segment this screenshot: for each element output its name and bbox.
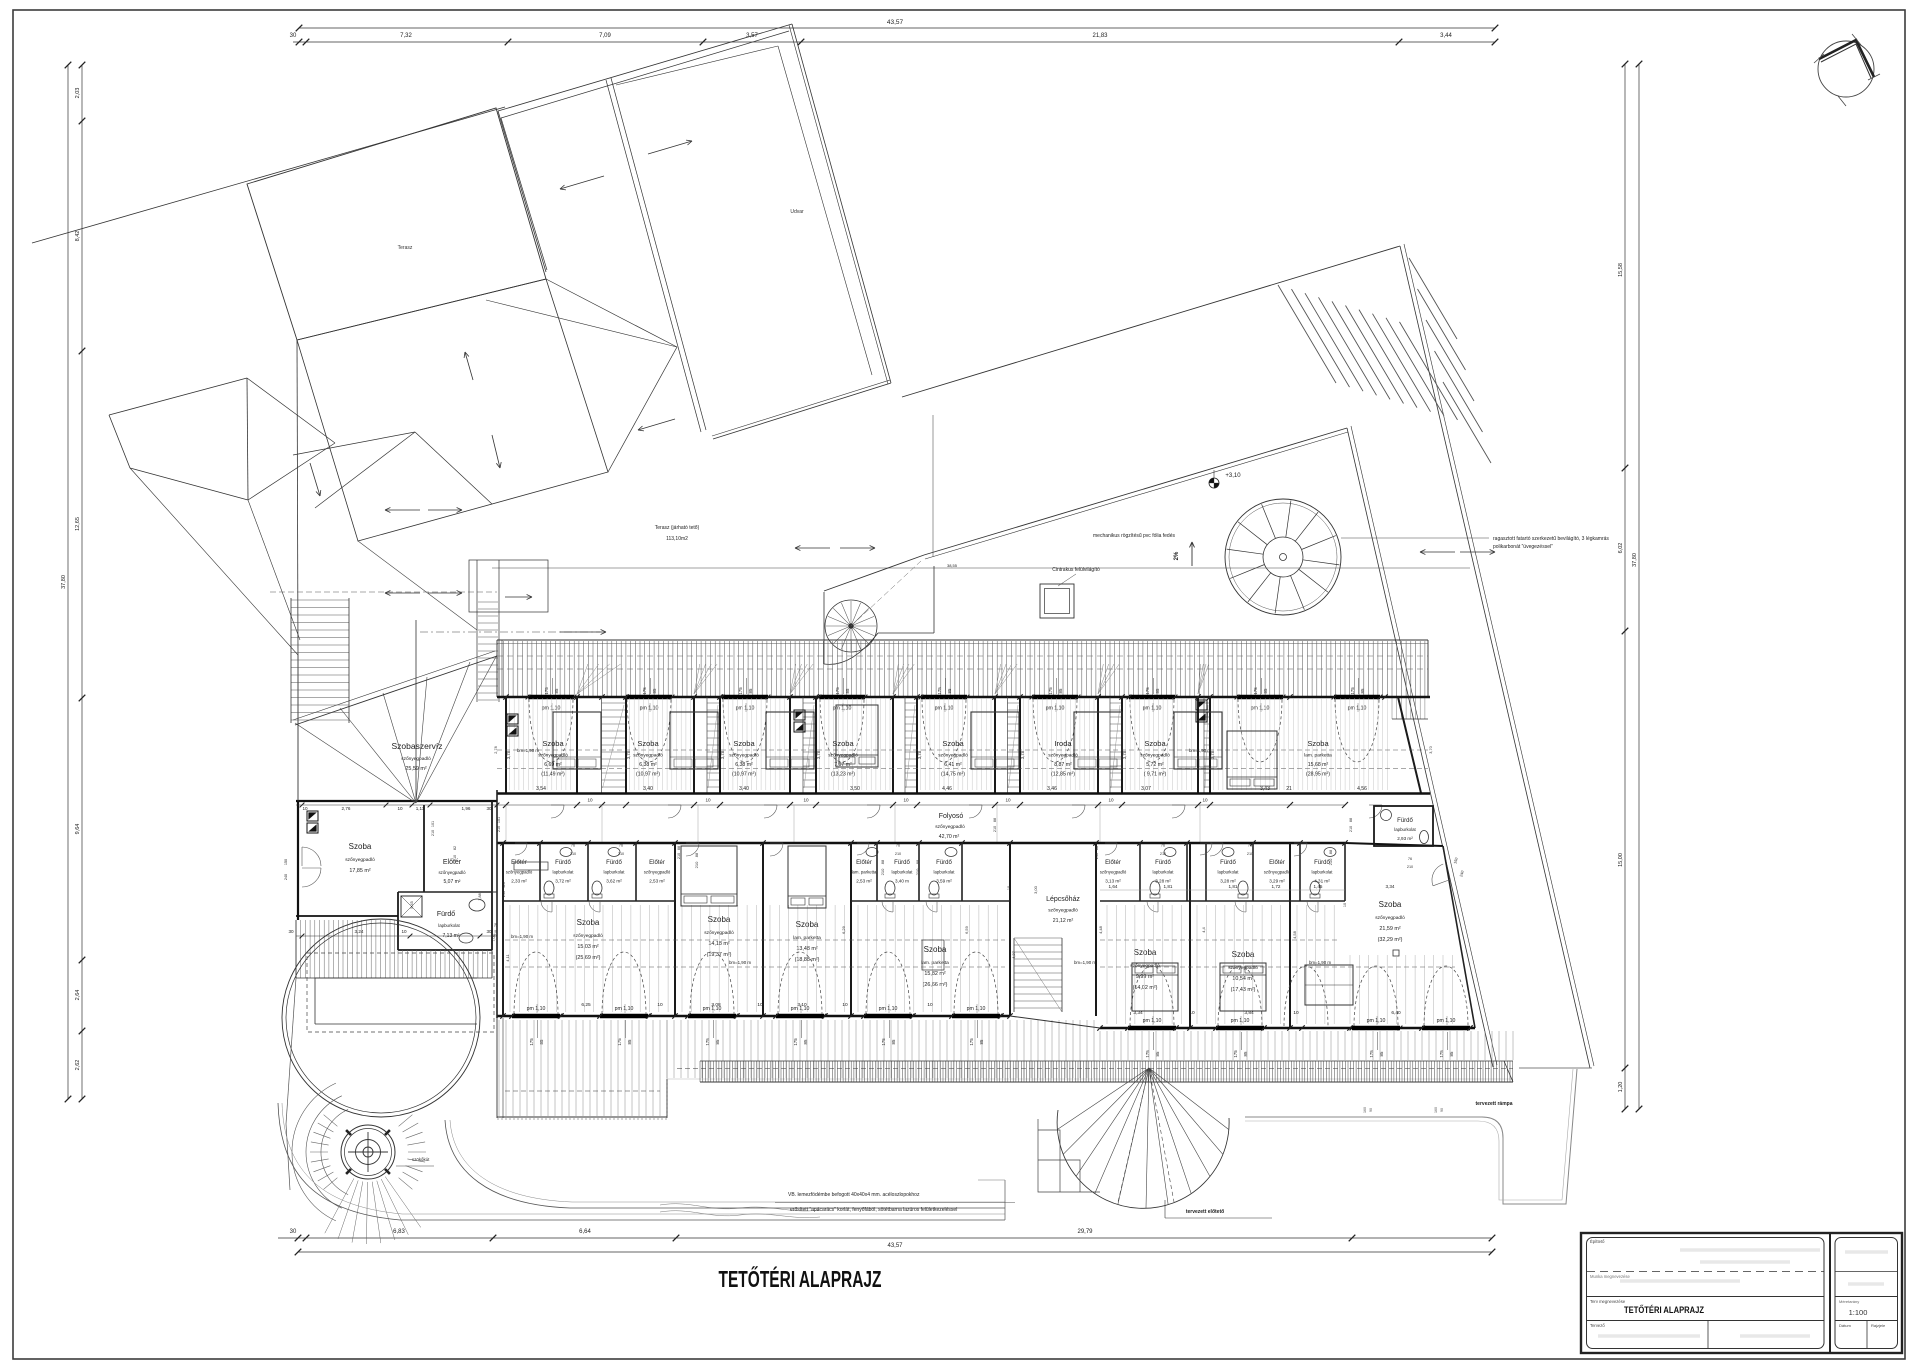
svg-text:TETŐTÉRI ALAPRAJZ: TETŐTÉRI ALAPRAJZ [719,1265,882,1292]
svg-text:pm 1,10: pm 1,10 [1046,706,1065,712]
svg-text:+3,10: +3,10 [1225,473,1241,479]
svg-text:(14,75 m²): (14,75 m²) [941,772,965,778]
svg-text:Udvar: Udvar [790,209,804,215]
svg-text:Fürdő: Fürdő [936,860,952,866]
svg-text:mechanikus rögzítésű pvc fóli: mechanikus rögzítésű pvc fólia fedés [1093,533,1175,539]
svg-text:szőnyegpadló: szőnyegpadló [633,753,663,759]
svg-text:210: 210 [1328,858,1333,865]
svg-text:3,78: 3,78 [506,750,511,759]
svg-text:2,64: 2,64 [75,990,81,1001]
svg-text:Terv megnevezése: Terv megnevezése [1590,1299,1626,1304]
svg-text:1,81: 1,81 [1229,884,1238,889]
svg-text:szőnyegpadló: szőnyegpadló [644,870,671,875]
svg-text:Szoba: Szoba [1144,739,1166,748]
svg-text:1,72: 1,72 [1272,884,1281,889]
svg-text:pm 1,10: pm 1,10 [1143,1018,1162,1024]
svg-text:Terasz: Terasz [398,245,413,251]
svg-text:175: 175 [1145,687,1150,695]
svg-text:(10,97 m²): (10,97 m²) [636,772,660,778]
svg-text:szőnyegpadló: szőnyegpadló [1375,915,1405,921]
svg-text:3,78: 3,78 [720,750,725,759]
svg-text:Munka megnevezése: Munka megnevezése [1590,1274,1630,1279]
svg-text:85: 85 [748,688,753,693]
svg-text:(14,02 m²): (14,02 m²) [1133,985,1158,991]
svg-text:85: 85 [627,1039,632,1044]
svg-text:15,00: 15,00 [1618,853,1624,867]
svg-text:3,78: 3,78 [1210,750,1215,759]
svg-text:2,33 m²: 2,33 m² [511,879,527,884]
svg-text:5,45: 5,45 [410,901,414,908]
svg-text:150: 150 [284,859,288,865]
svg-text:(12,85 m²): (12,85 m²) [1051,772,1075,778]
svg-text:lapburkolat: lapburkolat [1311,870,1333,875]
svg-text:pm 1,10: pm 1,10 [527,1006,546,1012]
svg-text:175: 175 [835,687,840,695]
svg-text:37,80: 37,80 [61,575,67,589]
svg-text:9,64: 9,64 [75,824,81,835]
svg-text:Terasz (járható tető): Terasz (járható tető) [655,525,700,531]
svg-text:Méretarány: Méretarány [1839,1299,1859,1304]
svg-text:3,07: 3,07 [1141,786,1151,792]
svg-text:10: 10 [842,1002,848,1008]
svg-text:pm 1,10: pm 1,10 [1251,706,1270,712]
svg-text:210: 210 [1095,853,1099,859]
svg-text:10: 10 [1343,903,1347,907]
svg-text:42,70 m²: 42,70 m² [939,834,960,840]
svg-text:10: 10 [705,798,711,803]
svg-text:2,93 m²: 2,93 m² [1397,836,1413,841]
svg-text:Fürdő: Fürdő [1397,818,1413,824]
svg-text:szőnyegpadló: szőnyegpadló [1100,870,1127,875]
svg-text:10: 10 [903,798,909,803]
svg-text:szőnyegpadló: szőnyegpadló [1140,753,1170,759]
svg-text:szőnyegpadló: szőnyegpadló [935,824,965,830]
svg-text:76: 76 [896,844,900,848]
svg-text:szőnyegpadló: szőnyegpadló [828,753,858,759]
svg-text:Fürdő: Fürdő [1155,860,1171,866]
svg-text:210: 210 [677,853,681,859]
svg-text:Dátum: Dátum [1839,1323,1851,1328]
svg-text:3,72 m²: 3,72 m² [555,879,571,884]
svg-text:2%: 2% [1174,551,1180,560]
svg-text:210: 210 [1407,865,1413,869]
svg-text:30: 30 [486,929,492,934]
svg-text:(28,95 m²): (28,95 m²) [1306,772,1330,778]
svg-text:175: 175 [1253,687,1258,695]
svg-text:Cintrakus felülvilágító: Cintrakus felülvilágító [1052,567,1100,573]
svg-text:3,54: 3,54 [536,786,546,792]
svg-text:85: 85 [1058,688,1063,693]
svg-text:Fürdő: Fürdő [1220,860,1236,866]
svg-text:210: 210 [570,852,576,856]
svg-text:30: 30 [290,33,297,39]
svg-text:2,03: 2,03 [75,88,81,99]
svg-text:175: 175 [544,687,549,695]
svg-text:88: 88 [1095,846,1099,850]
svg-text:2,76: 2,76 [342,806,351,811]
svg-text:10: 10 [1007,886,1011,890]
svg-text:Szoba: Szoba [1307,739,1329,748]
svg-text:21,59 m²: 21,59 m² [1379,926,1400,932]
svg-text:3,00: 3,00 [1033,885,1038,894]
svg-text:Szoba: Szoba [1232,950,1255,959]
svg-text:bm=1,90 m: bm=1,90 m [729,960,751,965]
svg-text:1,45: 1,45 [1314,884,1323,889]
svg-text:6,41 m²: 6,41 m² [944,762,962,768]
svg-text:pm 1,10: pm 1,10 [1143,706,1162,712]
svg-text:polikarbonát “üvegezéssel”: polikarbonát “üvegezéssel” [1493,544,1553,550]
svg-text:76: 76 [1161,844,1165,848]
svg-text:8,42: 8,42 [75,231,81,242]
svg-text:erősített “apácarács” korlát,: erősített “apácarács” korlát, fenyőfából… [790,1207,957,1213]
svg-text:6,40: 6,40 [1391,1010,1401,1016]
svg-text:3,40: 3,40 [643,786,653,792]
svg-text:TETŐTÉRI ALAPRAJZ: TETŐTÉRI ALAPRAJZ [1624,1304,1704,1315]
svg-text:175: 175 [881,1038,886,1046]
svg-text:szőnyegpadló: szőnyegpadló [938,753,968,759]
svg-text:lapburkolat: lapburkolat [552,870,574,875]
svg-text:4,48: 4,48 [1098,925,1103,934]
svg-text:1,20: 1,20 [1618,1082,1624,1093]
svg-text:pm 1,10: pm 1,10 [615,1006,634,1012]
svg-text:43,57: 43,57 [887,1243,903,1249]
svg-text:lam. parketta: lam. parketta [921,960,949,966]
svg-text:90: 90 [1369,1108,1373,1112]
svg-text:15,82 m²: 15,82 m² [924,971,945,977]
svg-text:76: 76 [619,844,623,848]
svg-text:3,70: 3,70 [1429,746,1433,753]
svg-text:88: 88 [1349,818,1353,822]
svg-text:Szoba: Szoba [542,739,564,748]
svg-text:175: 175 [793,1038,798,1046]
svg-text:10: 10 [401,929,407,934]
svg-text:10: 10 [757,1002,763,1008]
svg-text:15,68 m²: 15,68 m² [1308,762,1329,768]
svg-text:Szoba: Szoba [733,739,755,748]
svg-text:85: 85 [1360,688,1365,693]
svg-text:88: 88 [880,859,885,864]
svg-text:1,11: 1,11 [416,806,425,811]
svg-text:160: 160 [1363,1107,1367,1113]
svg-text:21: 21 [1286,786,1292,792]
svg-text:4,56: 4,56 [1357,786,1367,792]
svg-text:76: 76 [571,844,575,848]
svg-text:szőnyegpadló: szőnyegpadló [438,870,466,875]
svg-text:szőnyegpadló: szőnyegpadló [729,753,759,759]
svg-text:ragasztott fatartó szerkezetű: ragasztott fatartó szerkezetű bevilágító… [1493,536,1609,542]
svg-text:Előtér: Előtér [649,860,665,866]
svg-text:175: 175 [1048,687,1053,695]
svg-text:6,38 m²: 6,38 m² [735,762,753,768]
svg-text:10: 10 [657,1002,663,1008]
svg-text:10: 10 [302,806,308,811]
svg-text:175: 175 [642,687,647,695]
svg-text:Fürdő: Fürdő [555,860,571,866]
svg-text:29,79: 29,79 [1077,1229,1093,1235]
svg-text:85: 85 [891,1039,896,1044]
svg-text:3,78: 3,78 [1122,750,1127,759]
svg-text:Szoba: Szoba [942,739,964,748]
svg-text:30: 30 [288,929,294,934]
svg-text:15,03 m²: 15,03 m² [577,944,598,950]
svg-text:88: 88 [694,852,699,857]
svg-text:3,13 m²: 3,13 m² [1105,879,1121,884]
svg-text:Előtér: Előtér [1269,860,1285,866]
svg-text:6,29: 6,29 [841,925,846,934]
svg-text:pm 1,10: pm 1,10 [1231,1018,1250,1024]
svg-text:21,83: 21,83 [1092,33,1108,39]
svg-text:lam. parketta: lam. parketta [852,870,877,875]
svg-text:lam. parketta: lam. parketta [1304,753,1332,759]
svg-text:88: 88 [677,846,681,850]
svg-text:85: 85 [554,688,559,693]
svg-text:3,78: 3,78 [626,750,631,759]
svg-text:1:100: 1:100 [1849,1308,1868,1317]
svg-text:4,31 m²: 4,31 m² [1314,879,1330,884]
svg-text:10: 10 [1293,1010,1299,1016]
svg-text:6,59: 6,59 [964,925,969,934]
svg-text:Tervező: Tervező [1590,1323,1605,1328]
svg-text:6,83: 6,83 [393,1229,405,1235]
svg-text:(13,23 m²): (13,23 m²) [831,772,855,778]
svg-text:lapburkolat: lapburkolat [603,870,625,875]
svg-text:pm 1,10: pm 1,10 [967,1006,986,1012]
svg-text:210: 210 [1160,852,1166,856]
svg-text:160: 160 [1434,1107,1438,1113]
svg-text:76: 76 [1408,857,1412,861]
svg-text:175: 175 [1350,687,1355,695]
svg-text:210: 210 [1247,852,1253,856]
svg-text:37,80: 37,80 [1632,553,1638,567]
svg-text:bm=1,90 m: bm=1,90 m [517,748,539,753]
svg-text:7,09: 7,09 [599,33,611,39]
svg-text:85: 85 [1263,688,1268,693]
svg-text:210: 210 [618,852,624,856]
svg-text:10: 10 [1189,1010,1195,1016]
svg-text:3,78: 3,78 [1020,750,1025,759]
svg-text:85: 85 [845,688,850,693]
svg-text:lapburkolat: lapburkolat [1394,827,1416,832]
svg-text:3,59 m²: 3,59 m² [936,879,952,884]
svg-text:85: 85 [1155,688,1160,693]
svg-text:175: 175 [738,687,743,695]
svg-text:3,28 m²: 3,28 m² [1220,879,1236,884]
svg-text:15,58: 15,58 [1618,263,1624,277]
svg-text:175: 175 [529,1038,534,1046]
svg-text:lapburkolat: lapburkolat [891,870,913,875]
svg-text:82: 82 [453,846,457,850]
svg-text:pm 1,10: pm 1,10 [1437,1018,1456,1024]
svg-text:10: 10 [927,1002,933,1008]
svg-text:tervezett előtető: tervezett előtető [1186,1209,1224,1215]
svg-text:85: 85 [947,688,952,693]
svg-text:(25,69 m²): (25,69 m²) [576,955,601,961]
svg-text:szőnyegpadló: szőnyegpadló [1048,753,1078,759]
svg-text:lapburkolat: lapburkolat [1152,870,1174,875]
svg-text:Szoba: Szoba [637,739,659,748]
svg-text:7,32: 7,32 [400,33,412,39]
svg-text:lapburkolat: lapburkolat [438,923,460,928]
svg-text:4,37: 4,37 [1011,950,1016,959]
svg-text:3,08: 3,08 [711,1002,721,1008]
svg-text:szőnyegpadló: szőnyegpadló [573,933,603,939]
svg-text:10: 10 [803,798,809,803]
svg-text:6,25: 6,25 [581,1002,591,1008]
svg-text:210: 210 [895,852,901,856]
svg-text:Lépcsőház: Lépcsőház [1046,896,1080,903]
svg-text:17,85 m²: 17,85 m² [349,868,370,874]
svg-text:3,50: 3,50 [850,786,860,792]
svg-text:szőnyegpadló: szőnyegpadló [538,753,568,759]
svg-text:6,69 m²: 6,69 m² [544,762,562,768]
svg-text:8,87 m²: 8,87 m² [1054,762,1072,768]
svg-text:6,38 m²: 6,38 m² [639,762,657,768]
svg-text:Iroda: Iroda [1054,739,1072,748]
svg-text:85: 85 [979,1039,984,1044]
svg-text:3,84: 3,84 [1244,1010,1254,1016]
svg-text:4,58: 4,58 [1292,930,1297,939]
svg-text:lapburkolat: lapburkolat [1217,870,1239,875]
svg-text:Előtér: Előtér [856,860,872,866]
svg-text:21,12 m²: 21,12 m² [1053,918,1074,924]
svg-text:3,40: 3,40 [739,786,749,792]
svg-text:175: 175 [969,1038,974,1046]
svg-text:4,46: 4,46 [942,786,952,792]
svg-text:2,53 m²: 2,53 m² [649,879,665,884]
svg-text:3,46: 3,46 [1047,786,1057,792]
svg-text:3,34: 3,34 [1133,1010,1143,1016]
svg-text:Építtető: Építtető [1590,1239,1605,1244]
svg-text:Rajzjele: Rajzjele [1871,1323,1886,1328]
svg-text:tervezett rámpa: tervezett rámpa [1476,1101,1513,1107]
svg-text:bm=1,90 m: bm=1,90 m [1309,960,1331,965]
svg-text:(11,49 m²): (11,49 m²) [541,772,565,778]
svg-text:43,57: 43,57 [887,19,904,26]
svg-text:90: 90 [1440,1108,1444,1112]
svg-text:10: 10 [1202,798,1208,803]
svg-text:10: 10 [1108,798,1114,803]
svg-text:lapburkolat: lapburkolat [933,870,955,875]
svg-text:pm 1,10: pm 1,10 [1367,1018,1386,1024]
svg-text:2,78: 2,78 [494,746,498,753]
svg-text:Folyosó: Folyosó [939,813,964,820]
svg-text:10,54 m²: 10,54 m² [1232,976,1253,982]
svg-text:(32,29 m²): (32,29 m²) [1378,937,1403,943]
svg-text:Előtér: Előtér [1105,860,1121,866]
svg-text:pm 1,10: pm 1,10 [879,1006,898,1012]
svg-text:210: 210 [694,861,699,868]
svg-text:10: 10 [1005,798,1011,803]
svg-text:113,10m2: 113,10m2 [666,536,688,542]
svg-text:3,40 m: 3,40 m [895,879,909,884]
svg-text:pm 1,10: pm 1,10 [542,706,561,712]
svg-text:3,29 m²: 3,29 m² [1269,879,1285,884]
svg-text:30: 30 [290,1229,297,1235]
svg-text:Fürdő: Fürdő [606,860,622,866]
svg-text:3,34: 3,34 [1386,884,1395,889]
svg-text:3,10: 3,10 [797,1002,807,1008]
svg-text:3,24: 3,24 [355,929,364,934]
svg-text:3,78: 3,78 [816,750,821,759]
svg-text:Szoba: Szoba [1379,900,1402,909]
svg-text:38,55: 38,55 [947,563,958,568]
svg-text:175: 175 [937,687,942,695]
svg-text:88: 88 [915,859,920,864]
svg-text:12,65: 12,65 [75,517,81,531]
svg-text:1,64: 1,64 [1109,884,1118,889]
svg-text:85: 85 [652,688,657,693]
svg-text:(26,66 m²): (26,66 m²) [923,982,948,988]
svg-text:210: 210 [431,830,435,836]
svg-text:pm 1,10: pm 1,10 [640,706,659,712]
svg-text:6,64: 6,64 [579,1229,591,1235]
svg-text:3,44: 3,44 [1440,33,1452,39]
svg-text:175: 175 [1233,1050,1238,1058]
svg-text:210: 210 [1349,826,1353,832]
svg-text:(10,97 m²): (10,97 m²) [732,772,756,778]
svg-text:Fürdő: Fürdő [437,911,455,918]
svg-text:210: 210 [993,826,997,832]
svg-text:1,96: 1,96 [462,806,471,811]
svg-text:pm 1,10: pm 1,10 [833,706,852,712]
svg-text:szőnyegpadló: szőnyegpadló [1264,870,1291,875]
svg-text:szőnyegpadló: szőnyegpadló [1048,908,1078,914]
svg-text:bm=1,90 m: bm=1,90 m [511,934,533,939]
svg-text:2,62: 2,62 [75,1060,81,1071]
svg-text:210: 210 [915,868,920,875]
svg-text:4,11: 4,11 [505,953,510,961]
svg-text:1,88: 1,88 [478,893,482,900]
svg-text:10: 10 [587,798,593,803]
svg-text:2,53 m²: 2,53 m² [856,879,872,884]
svg-text:3,78: 3,78 [917,750,922,759]
svg-text:101: 101 [431,821,435,827]
svg-text:bm=1,90 m: bm=1,90 m [1074,960,1096,965]
svg-text:210: 210 [453,855,457,861]
svg-text:30: 30 [486,806,492,811]
svg-text:VB. lemezfödémbe befogott 40x4: VB. lemezfödémbe befogott 40x40x4 mm. ac… [788,1192,920,1198]
svg-text:Szoba: Szoba [349,842,372,851]
svg-text:85: 85 [539,1039,544,1044]
svg-text:210: 210 [880,868,885,875]
svg-text:88: 88 [1328,849,1333,854]
svg-text:Szoba: Szoba [577,918,600,927]
svg-text:88: 88 [993,818,997,822]
svg-text:3,28 m²: 3,28 m² [1155,879,1171,884]
svg-text:bm=1,90 m: bm=1,90 m [1189,748,1211,753]
svg-text:pm 1,10: pm 1,10 [1348,706,1367,712]
svg-text:szőnyegpadló: szőnyegpadló [345,857,375,863]
svg-text:3,62 m²: 3,62 m² [606,879,622,884]
svg-text:240: 240 [284,874,288,880]
svg-text:1,81: 1,81 [1164,884,1173,889]
svg-text:5,07 m²: 5,07 m² [444,879,461,885]
svg-text:4,4: 4,4 [1201,926,1206,932]
svg-text:Előtér: Előtér [511,860,527,866]
svg-text:5,72 m²: 5,72 m² [1146,762,1164,768]
svg-text:6,02: 6,02 [1618,543,1624,554]
svg-text:10: 10 [397,806,403,811]
svg-text:Szoba: Szoba [924,945,947,954]
svg-text:Fürdő: Fürdő [894,860,910,866]
svg-text:( 9,71 m²): ( 9,71 m²) [1144,772,1167,778]
